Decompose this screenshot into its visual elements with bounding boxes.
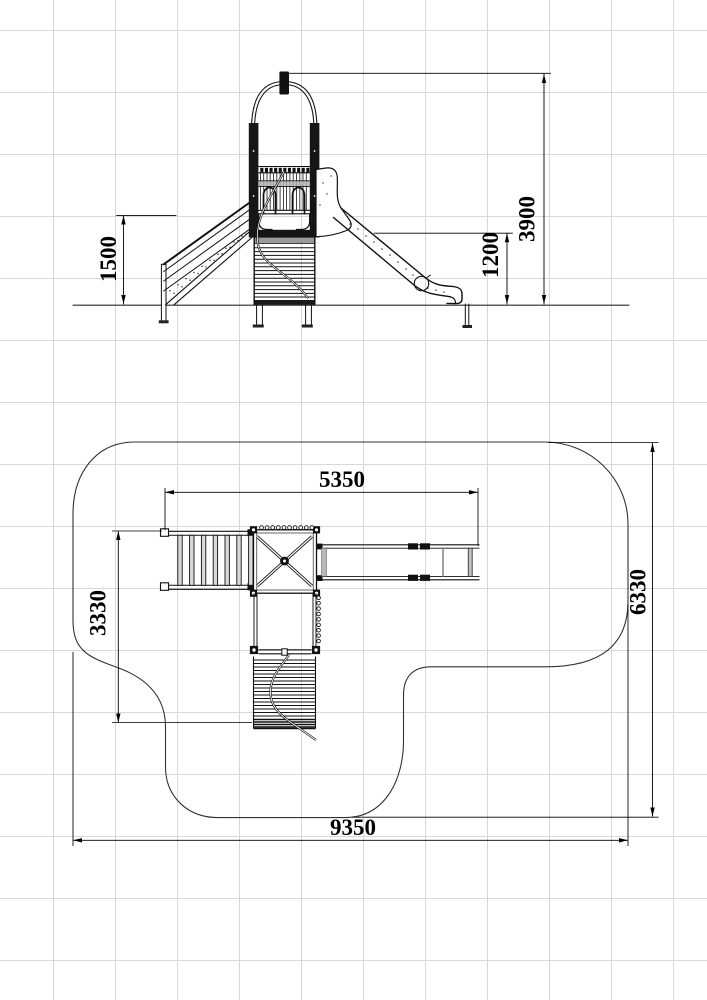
mid-rail-band (259, 181, 310, 187)
dim-label-1200: 1200 (478, 232, 503, 278)
dim-label-9350: 9350 (330, 815, 376, 840)
dim-label-6330: 6330 (625, 569, 650, 615)
stringer-end-cap (161, 583, 169, 591)
grid-background (0, 0, 707, 1000)
net-holes-column (317, 596, 321, 643)
dim-label-5350: 5350 (319, 467, 365, 492)
dim-label-3900: 3900 (514, 196, 539, 242)
drawing-page: 1500 3900 1200 (0, 0, 707, 1000)
stringer-end-cap (161, 529, 169, 537)
wall-bottom-bar (254, 300, 315, 305)
slide-end-support (468, 548, 472, 576)
ramp-post-foot (159, 320, 169, 323)
dim-label-1500: 1500 (96, 236, 121, 282)
tower-post-left (249, 123, 259, 238)
roof-finial (279, 72, 289, 95)
dim-label-3330: 3330 (85, 590, 110, 636)
platform-plan (250, 526, 320, 597)
rope-anchor (282, 649, 287, 655)
ramp-end-post (161, 264, 166, 322)
technical-drawing-canvas: 1500 3900 1200 (0, 0, 707, 1000)
wall-top-band (254, 237, 315, 243)
platform-deck (252, 230, 318, 237)
slide-entry-connector (322, 548, 327, 576)
